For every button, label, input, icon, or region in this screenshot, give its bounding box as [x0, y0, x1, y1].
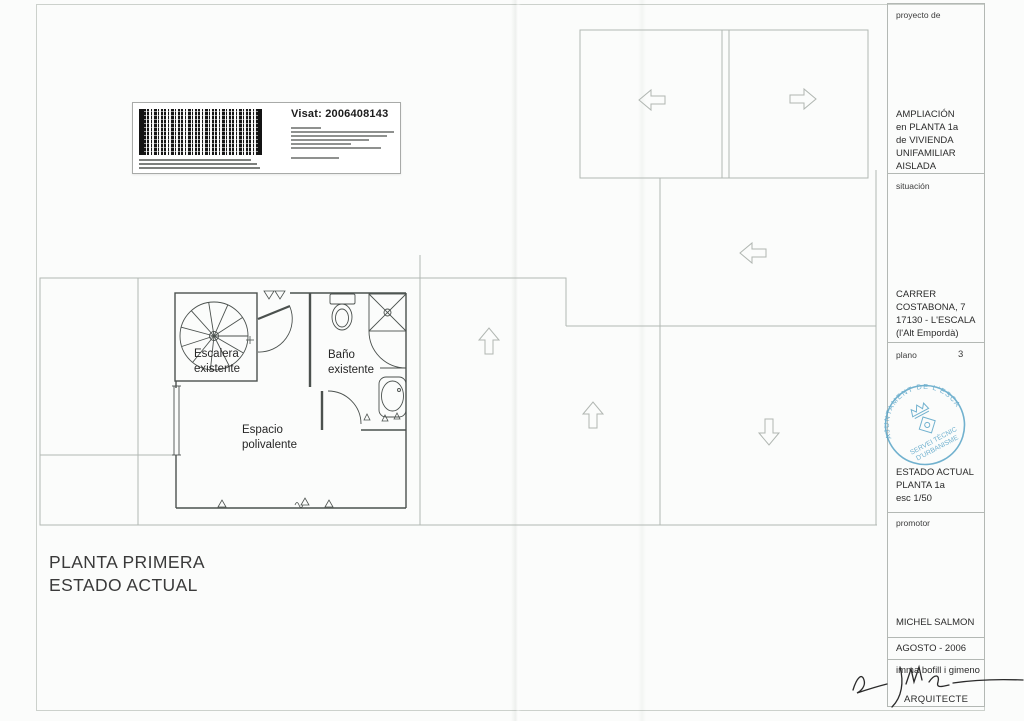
divider [888, 342, 984, 343]
window [172, 386, 181, 455]
room-label-bath: Baño existente [328, 348, 374, 378]
barcode-2d-icon [139, 109, 262, 155]
direction-arrows [479, 89, 816, 445]
divider [888, 173, 984, 174]
drawing-title: ESTADO ACTUAL PLANTA 1a esc 1/50 [896, 466, 974, 505]
toilet [330, 294, 355, 330]
plano-label: plano [896, 350, 917, 360]
arrow-down-icon [759, 419, 779, 445]
door-swing-arc [258, 307, 292, 352]
visat-number: Visat: 2006408143 [291, 108, 388, 120]
divider [888, 637, 984, 638]
site-address: CARRER COSTABONA, 7 17130 - L'ESCALA (l'… [896, 288, 975, 340]
plano-number: 3 [958, 349, 963, 360]
promotor-label: promotor [896, 518, 930, 528]
door-swing-arc [328, 391, 361, 424]
arrow-up-icon [479, 328, 499, 354]
project-name: AMPLIACIÓN en PLANTA 1a de VIVIENDA UNIF… [896, 108, 958, 173]
promoter-name: MICHEL SALMON [896, 616, 974, 629]
arrow-right-icon [790, 89, 816, 109]
proyecto-label: proyecto de [896, 10, 940, 20]
sheet-title: PLANTA PRIMERA ESTADO ACTUAL [49, 551, 205, 597]
shower-tray [369, 294, 406, 331]
room-label-multi-space: Espacio polivalente [242, 423, 297, 453]
door-leaf [258, 306, 290, 319]
door-swing-arc [369, 331, 406, 368]
stamp-crown-icon [909, 401, 930, 419]
room-label-stairs: Escalera existente [194, 347, 240, 377]
arrow-up-icon [583, 402, 603, 428]
architect-signature [845, 652, 1024, 712]
washbasin [379, 377, 406, 417]
arrow-left-icon [639, 90, 665, 110]
municipal-stamp: AJUNTAMENT DE L'ESCALA SERVEI TÈCNIC D'U… [879, 379, 971, 471]
title-block: proyecto de AMPLIACIÓN en PLANTA 1a de V… [887, 3, 985, 707]
arrow-left-icon [740, 243, 766, 263]
visat-sticker: Visat: 2006408143 [132, 102, 401, 174]
interior-walls [172, 291, 406, 508]
situacion-label: situación [896, 181, 930, 191]
divider [888, 512, 984, 513]
